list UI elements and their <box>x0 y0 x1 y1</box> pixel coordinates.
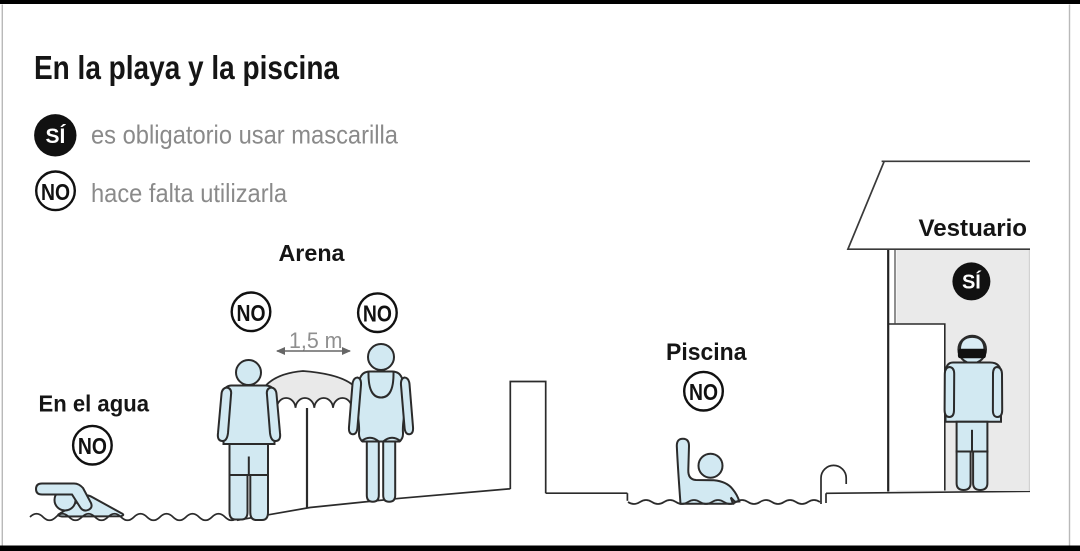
svg-text:NO: NO <box>41 179 70 205</box>
svg-text:SÍ: SÍ <box>45 125 66 148</box>
svg-text:En la playa y la piscina: En la playa y la piscina <box>34 49 340 86</box>
svg-text:Vestuario: Vestuario <box>919 215 1028 242</box>
svg-text:hace falta utilizarla: hace falta utilizarla <box>91 178 287 208</box>
svg-text:Piscina: Piscina <box>666 339 747 366</box>
svg-text:NO: NO <box>237 300 266 326</box>
svg-text:es obligatorio usar mascarilla: es obligatorio usar mascarilla <box>91 120 398 150</box>
svg-text:NO: NO <box>363 301 392 327</box>
svg-text:SÍ: SÍ <box>962 271 981 294</box>
svg-text:NO: NO <box>78 433 107 459</box>
svg-text:Arena: Arena <box>279 240 346 266</box>
svg-text:NO: NO <box>689 379 718 405</box>
svg-text:1,5 m: 1,5 m <box>289 328 343 353</box>
svg-text:En el agua: En el agua <box>39 391 150 417</box>
